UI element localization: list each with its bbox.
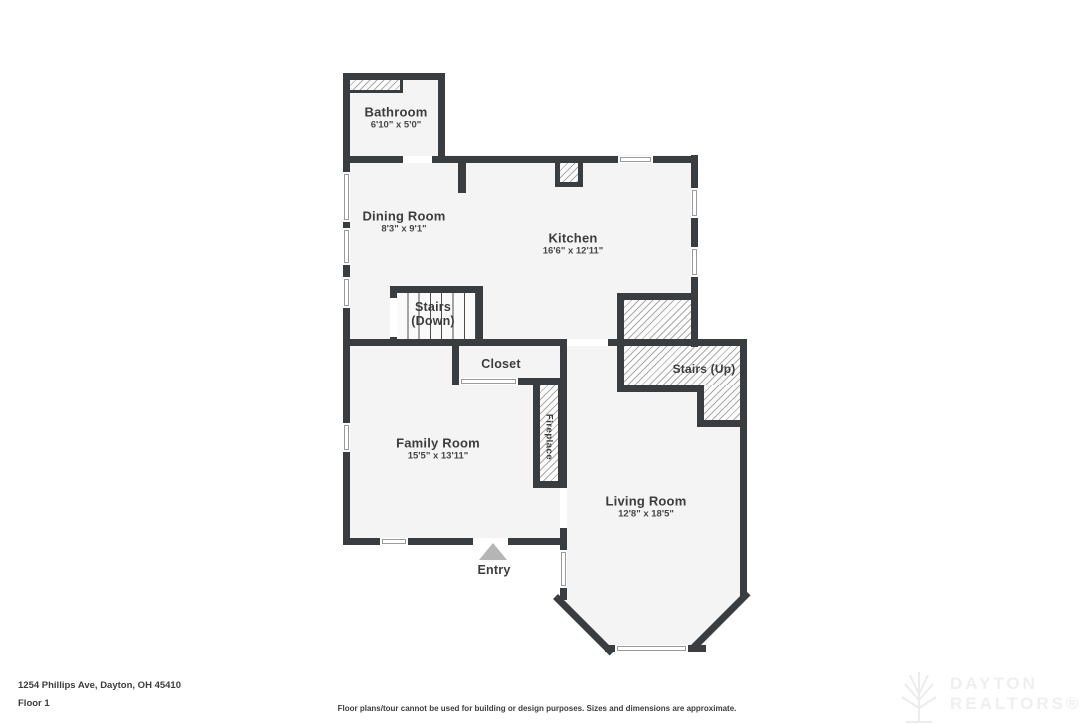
- entry-arrow-icon: [479, 543, 507, 560]
- room-label-family-room: Family Room 15'5" x 13'11": [396, 436, 480, 463]
- room-label-stairs-up: Stairs (Up): [673, 362, 736, 376]
- wall: [617, 293, 698, 300]
- wall: [452, 346, 459, 385]
- window: [618, 156, 653, 163]
- room-name: Entry: [478, 563, 511, 577]
- dayton-realtors-watermark: DAYTON REALTORS®: [888, 670, 1086, 724]
- watermark-line-2: REALTORS®: [950, 694, 1081, 714]
- room-name: Stairs: [411, 300, 455, 314]
- wall: [508, 538, 567, 545]
- wall: [343, 339, 567, 346]
- wall: [740, 339, 747, 598]
- room-name: Family Room: [396, 436, 480, 451]
- wall: [458, 163, 466, 193]
- room-label-kitchen: Kitchen 16'6" x 12'11": [543, 231, 604, 258]
- room-label-entry: Entry: [478, 563, 511, 577]
- window: [343, 228, 350, 265]
- wall: [408, 538, 473, 545]
- hatched-area: [704, 385, 740, 420]
- wall: [560, 339, 567, 488]
- room-dims: 15'5" x 13'11": [396, 451, 480, 463]
- doorway-opening: [403, 156, 432, 163]
- room-label-closet: Closet: [481, 357, 520, 371]
- wall: [438, 156, 618, 163]
- room-label-bathroom: Bathroom 6'10" x 5'0": [365, 105, 428, 132]
- room-dims: 6'10" x 5'0": [365, 120, 428, 132]
- watermark-line-1: DAYTON: [950, 674, 1081, 694]
- room-name: (Down): [411, 314, 455, 328]
- room-label-fireplace: Fireplace: [544, 414, 555, 460]
- wall: [343, 73, 350, 163]
- doorway-opening: [390, 298, 397, 337]
- floor-plan-page: Bathroom 6'10" x 5'0" Dining Room 8'3" x…: [0, 0, 1086, 724]
- wall: [343, 538, 380, 545]
- room-name: Kitchen: [543, 231, 604, 246]
- wall: [438, 73, 445, 158]
- wall: [476, 286, 483, 346]
- window: [343, 423, 350, 452]
- wall: [617, 385, 704, 392]
- dayton-realtors-tree-icon: [893, 670, 945, 724]
- hatched-area: [560, 163, 578, 182]
- wall: [608, 339, 747, 346]
- room-name: Stairs (Up): [673, 362, 736, 376]
- room-dims: 12'8" x 18'5": [606, 509, 687, 521]
- window: [380, 538, 408, 545]
- room-label-stairs-down: Stairs (Down): [411, 300, 455, 328]
- window: [615, 645, 688, 652]
- floor-number-label: Floor 1: [18, 698, 50, 709]
- wall: [343, 73, 445, 80]
- hatched-area: [348, 80, 400, 90]
- room-name: Closet: [481, 357, 520, 371]
- room-dims: 8'3" x 9'1": [362, 224, 445, 236]
- room-label-living-room: Living Room 12'8" x 18'5": [606, 494, 687, 521]
- doorway-opening: [567, 339, 608, 346]
- window: [343, 277, 350, 308]
- hatched-area: [624, 300, 691, 340]
- window: [560, 550, 567, 588]
- wall: [343, 156, 403, 163]
- room-name: Dining Room: [362, 209, 445, 224]
- window: [459, 378, 518, 385]
- wall: [390, 286, 483, 293]
- wall: [533, 378, 540, 488]
- window: [343, 172, 350, 222]
- room-name: Fireplace: [544, 414, 555, 460]
- room-dims: 16'6" x 12'11": [543, 246, 604, 258]
- doorway-opening: [560, 488, 567, 528]
- wall: [390, 286, 397, 298]
- window: [691, 247, 698, 277]
- room-label-dining-room: Dining Room 8'3" x 9'1": [362, 209, 445, 236]
- room-name: Living Room: [606, 494, 687, 509]
- window: [691, 188, 698, 218]
- property-address: 1254 Phillips Ave, Dayton, OH 45410: [18, 680, 181, 691]
- room-name: Bathroom: [365, 105, 428, 120]
- disclaimer-text: Floor plans/tour cannot be used for buil…: [338, 704, 737, 713]
- wall: [390, 337, 397, 346]
